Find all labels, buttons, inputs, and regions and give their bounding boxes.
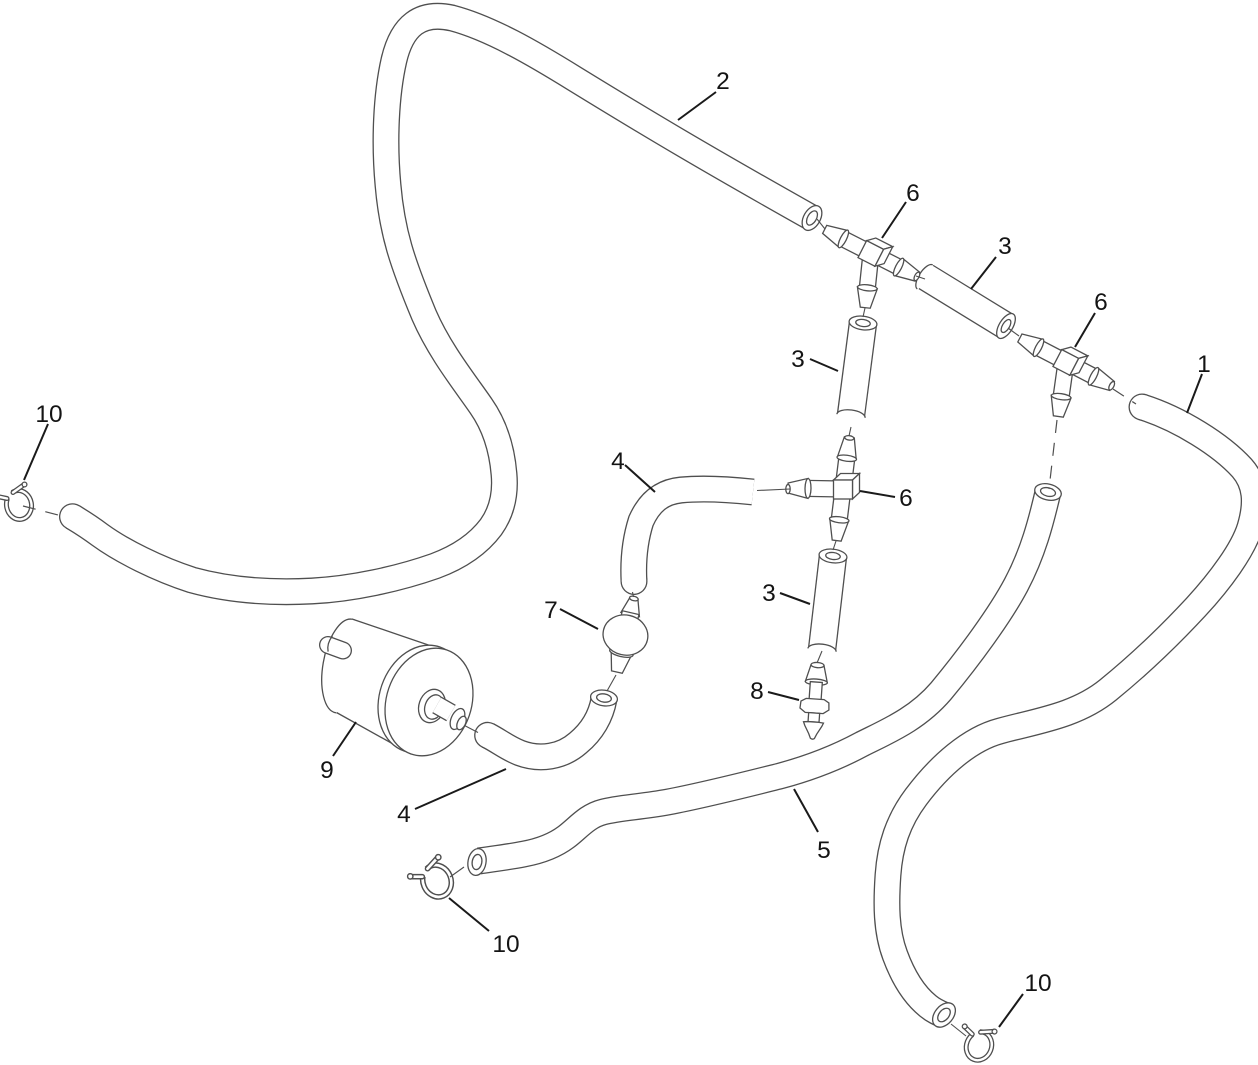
svg-text:7: 7	[544, 597, 558, 624]
svg-text:2: 2	[716, 68, 730, 95]
svg-text:3: 3	[998, 233, 1012, 260]
svg-text:3: 3	[791, 346, 805, 373]
svg-text:4: 4	[611, 448, 625, 475]
svg-text:8: 8	[750, 678, 764, 705]
svg-text:10: 10	[1024, 970, 1051, 997]
svg-text:10: 10	[35, 401, 62, 428]
svg-text:6: 6	[1094, 289, 1108, 316]
svg-text:3: 3	[762, 580, 776, 607]
svg-text:10: 10	[492, 931, 519, 958]
svg-text:1: 1	[1197, 351, 1211, 378]
svg-text:6: 6	[906, 180, 920, 207]
svg-text:6: 6	[899, 485, 913, 512]
svg-text:9: 9	[320, 757, 334, 784]
svg-text:4: 4	[397, 801, 411, 828]
svg-text:5: 5	[817, 837, 831, 864]
